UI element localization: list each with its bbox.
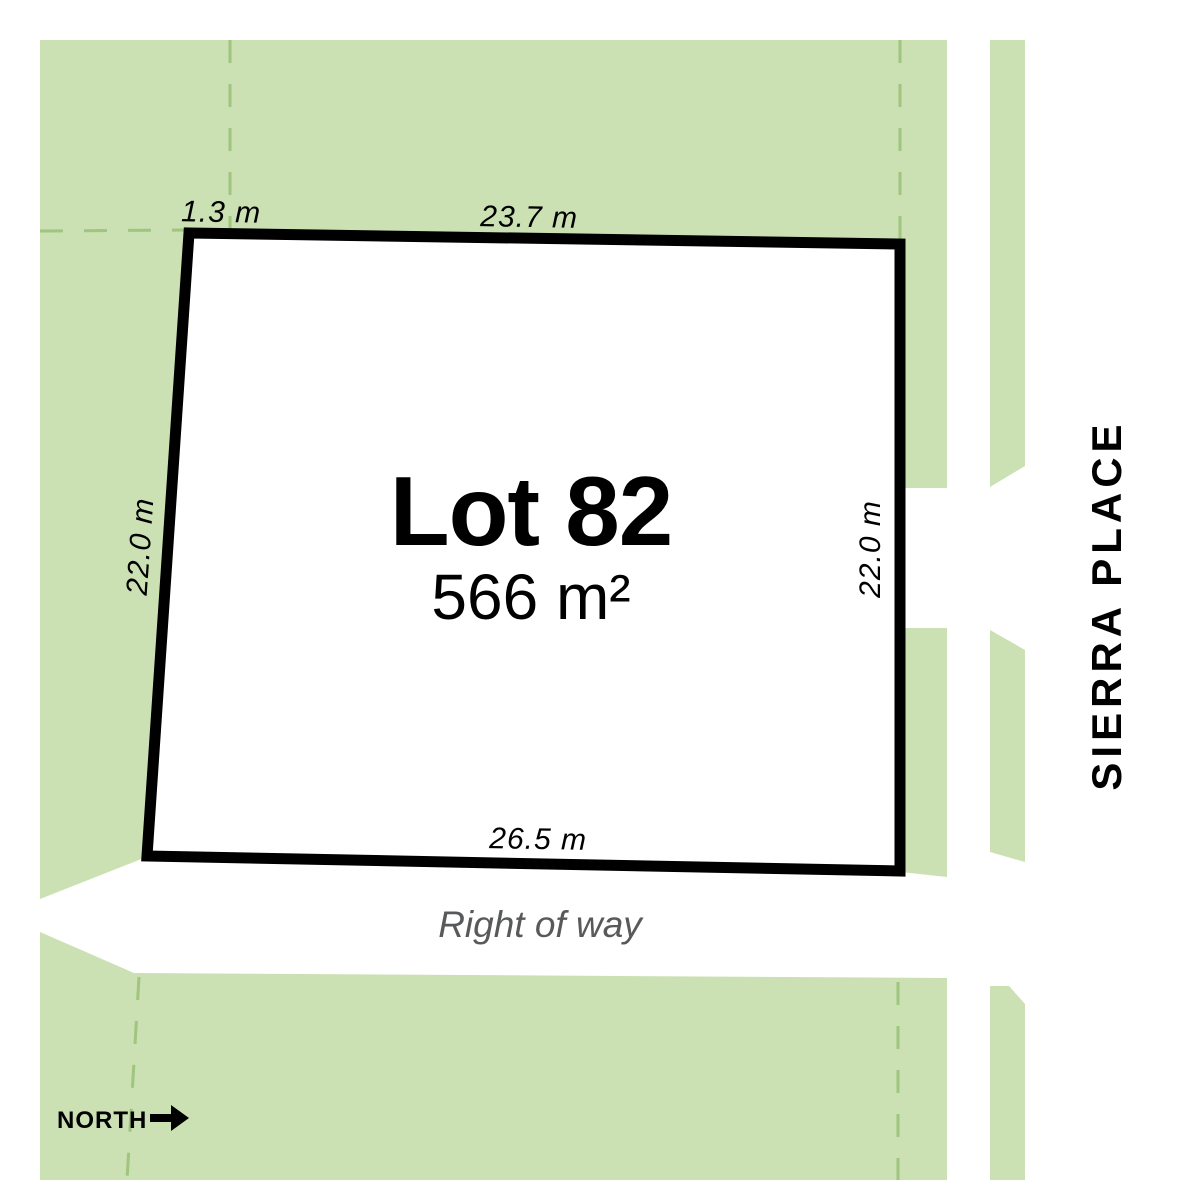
plan-canvas: Lot 82 566 m² 1.3 m 23.7 m 22.0 m 22.0 m… [0,0,1200,1200]
verge-strip-far-east-bottom [990,986,1025,1180]
street-name-label: SIERRA PLACE [1083,419,1130,790]
dim-label-right: 22.0 m [854,500,887,599]
surrounding-parcel-bottom [40,932,947,1180]
verge-strip-east-middle [901,628,947,877]
right-of-way-label: Right of way [438,904,644,945]
lot-plan-diagram: Lot 82 566 m² 1.3 m 23.7 m 22.0 m 22.0 m… [0,0,1200,1200]
dim-label-bottom: 26.5 m [488,822,587,857]
dim-label-left: 22.0 m [121,496,161,597]
north-label: NORTH [57,1107,147,1134]
verge-strip-far-east-top [990,40,1025,487]
verge-strip-far-east-middle [990,630,1025,862]
dim-label-top-offset: 1.3 m [181,195,262,229]
lot-title: Lot 82 [390,456,673,566]
dim-label-top: 23.7 m [479,200,578,235]
lot-area: 566 m² [431,561,630,633]
